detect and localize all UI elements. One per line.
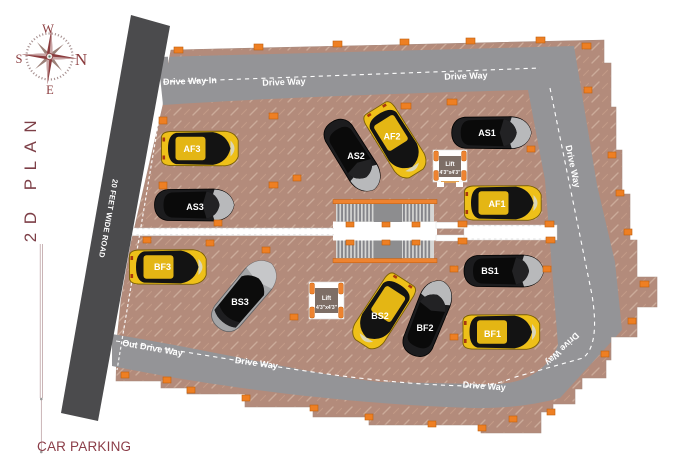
svg-text:BS1: BS1 bbox=[481, 266, 499, 276]
svg-text:Drive Way In: Drive Way In bbox=[163, 75, 217, 87]
svg-text:Lift: Lift bbox=[445, 162, 454, 168]
svg-text:AS1: AS1 bbox=[478, 128, 496, 138]
svg-text:BF2: BF2 bbox=[416, 323, 433, 333]
svg-text:Drive Way: Drive Way bbox=[444, 70, 488, 82]
svg-text:4'3"x4'3": 4'3"x4'3" bbox=[316, 305, 338, 311]
svg-text:4'3"x4'3": 4'3"x4'3" bbox=[439, 170, 461, 176]
svg-text:Drive Way: Drive Way bbox=[262, 76, 306, 88]
svg-text:AF1: AF1 bbox=[488, 199, 505, 209]
svg-text:CAR PARKING: CAR PARKING bbox=[37, 439, 131, 454]
svg-text:BF1: BF1 bbox=[484, 329, 501, 339]
svg-text:2D PLAN: 2D PLAN bbox=[21, 112, 40, 242]
svg-text:W: W bbox=[42, 22, 54, 36]
svg-text:S: S bbox=[16, 52, 23, 66]
svg-text:Lift: Lift bbox=[322, 296, 331, 302]
svg-text:AS2: AS2 bbox=[347, 151, 365, 161]
svg-text:BF3: BF3 bbox=[154, 262, 171, 272]
svg-text:E: E bbox=[46, 83, 54, 97]
svg-text:AF3: AF3 bbox=[183, 144, 200, 154]
svg-text:N: N bbox=[75, 50, 87, 69]
svg-text:BS3: BS3 bbox=[231, 297, 249, 307]
svg-text:AS3: AS3 bbox=[186, 202, 204, 212]
svg-text:AF2: AF2 bbox=[383, 132, 400, 142]
svg-text:BS2: BS2 bbox=[371, 311, 389, 321]
